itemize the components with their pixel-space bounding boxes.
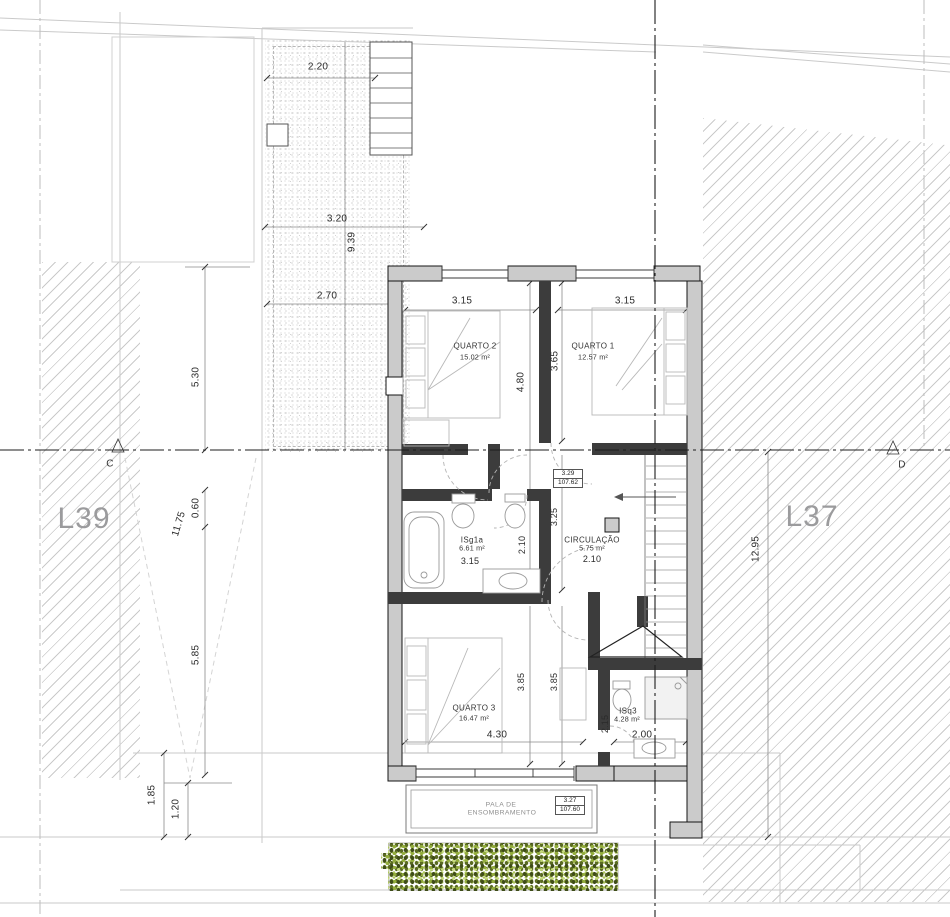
dim-isg1a-width: 3.15 <box>461 556 479 566</box>
desk-quarto3 <box>560 668 586 720</box>
exterior-stair <box>267 42 412 155</box>
level-elevation: 107.60 <box>556 806 584 814</box>
dim-bottom-1-20: 1.20 <box>171 799 182 819</box>
room-name-quarto3: QUARTO 3 <box>452 704 495 713</box>
section-marker-c: C <box>106 459 113 470</box>
bed-quarto1 <box>592 308 687 415</box>
dim-patio-mid: 3.20 <box>327 214 347 225</box>
dim-quarto3-height-b: 3.85 <box>549 673 559 691</box>
dim-quarto1-height: 3.65 <box>550 351 561 371</box>
level-marker-lower: 3.27 107.60 <box>555 796 585 815</box>
dim-left-5-30: 5.30 <box>191 367 202 387</box>
dim-quarto1-width: 3.15 <box>615 296 635 307</box>
staircase <box>590 455 686 658</box>
bidet-icon <box>505 494 525 528</box>
dim-isq3-width: 2.00 <box>632 730 652 741</box>
dim-bottom-1-85: 1.85 <box>147 785 158 805</box>
room-area-quarto1: 12.57 m² <box>578 353 608 362</box>
lot-label-l37: L37 <box>785 500 838 534</box>
dim-patio-top: 2.20 <box>308 62 328 73</box>
dimension-ticks <box>161 75 771 840</box>
dim-left-0-60: 0.60 <box>191 498 202 518</box>
room-area-quarto2: 15.02 m² <box>460 353 490 362</box>
pala-label-line2: ENSOMBRAMENTO <box>468 810 537 817</box>
bed-quarto2 <box>403 311 500 446</box>
stair-void-triangle <box>590 626 682 657</box>
dim-right-12-95: 12.95 <box>751 536 762 562</box>
wall-box <box>386 377 403 395</box>
shower-icon <box>645 677 687 719</box>
dim-quarto2-height: 4.80 <box>516 372 527 392</box>
section-flag-d <box>887 441 899 454</box>
level-height: 3.29 <box>554 470 582 479</box>
dim-quarto3-width: 4.30 <box>487 730 507 741</box>
dim-quarto3-height-a: 3.85 <box>516 673 526 691</box>
dim-quarto2-width: 3.15 <box>452 296 472 307</box>
washbasin-icon <box>483 569 540 593</box>
section-axes <box>0 0 950 917</box>
room-area-quarto3: 16.47 m² <box>459 714 489 723</box>
room-area-circulacao: 5.75 m² <box>579 544 605 553</box>
lot-label-l39: L39 <box>57 502 110 536</box>
newel-column <box>605 518 619 532</box>
dim-patio-low: 2.70 <box>317 291 337 302</box>
room-name-quarto1: QUARTO 1 <box>571 342 614 351</box>
stair-direction-arrow <box>614 493 623 501</box>
room-area-isg1a: 6.61 m² <box>459 544 485 553</box>
dim-isg1a-height: 2.10 <box>517 536 527 554</box>
bathtub-icon <box>404 512 444 588</box>
level-elevation: 107.62 <box>554 479 582 487</box>
pala-label-line1: PALA DE <box>486 802 517 809</box>
dim-patio-height: 9.39 <box>347 232 358 252</box>
dim-left-5-85: 5.85 <box>191 645 202 665</box>
dim-circulacao-width: 2.10 <box>583 554 601 564</box>
plan-linework <box>0 0 950 917</box>
room-name-quarto2: QUARTO 2 <box>453 342 496 351</box>
level-height: 3.27 <box>556 797 584 806</box>
section-marker-d: D <box>898 460 905 471</box>
dim-circulacao-height: 3.25 <box>549 508 559 526</box>
patio-box <box>267 124 288 146</box>
room-area-isq3: 4.28 m² <box>614 715 640 724</box>
hedge-vegetation-clump <box>381 853 391 869</box>
hedge-vegetation <box>388 843 618 891</box>
level-marker-upper: 3.29 107.62 <box>553 469 583 488</box>
floor-plan-drawing: L39 L37 C D QUARTO 2 15.02 m² QUARTO 1 1… <box>0 0 950 917</box>
toilet-icon <box>452 494 475 528</box>
dim-isq3-height: 2.15 <box>600 715 610 733</box>
